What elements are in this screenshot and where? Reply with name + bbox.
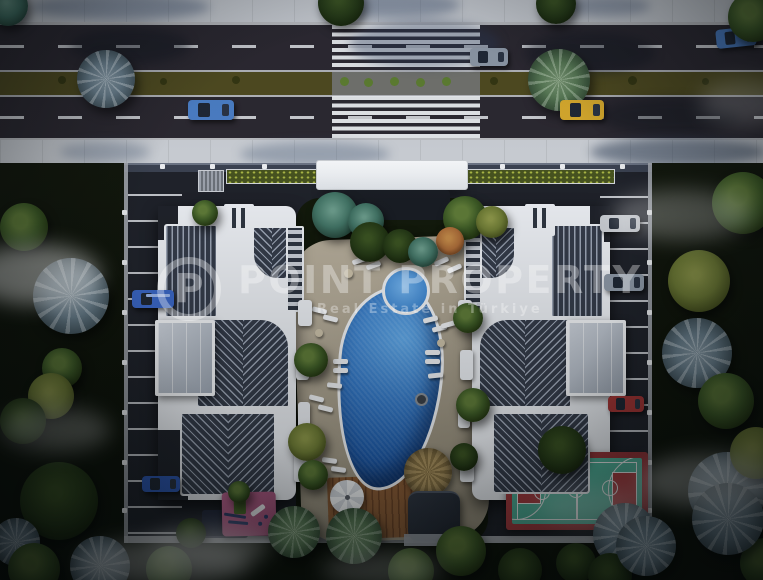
tree [288,423,326,461]
fog-wisp [150,527,270,567]
fog-wisp [0,408,110,452]
fog-wisp [540,488,650,528]
roof-vent-block [224,204,254,236]
car-windshield [613,277,623,289]
roof-vent [241,208,245,228]
parked-car-red [608,396,644,412]
spa-pool [382,267,430,315]
sun-lounger [425,359,440,364]
car-gray [470,48,508,66]
car-rear-window [635,399,641,409]
taxi-yellow [560,100,604,120]
tree [538,426,586,474]
car-windshield [616,398,625,409]
car-windshield [570,103,581,117]
tree [436,227,464,255]
median-shrub [232,76,240,84]
tree [294,343,328,377]
tree [298,460,328,490]
wall-post [210,164,215,169]
building-left [158,204,310,500]
skylight-panel [566,320,626,396]
car-windshield [478,51,488,64]
sun-lounger [333,368,348,373]
car-rear-window [498,52,504,63]
balcony [298,300,312,326]
aerial-property-render: P POINT PROPERTY Real Estate in Türkiye [0,0,763,580]
roof-vent [542,208,546,228]
skylight-panel [155,320,215,396]
car-blue [188,100,234,120]
wall-post [160,164,165,169]
median-shrub [702,78,709,85]
tree [408,237,438,267]
deck-table-dark [415,393,428,406]
deck-table [437,339,445,347]
tree [698,373,754,429]
car-rear-window [593,104,600,116]
sun-lounger [333,359,348,364]
tree [456,388,490,422]
entrance-hedge-left [226,169,318,184]
fog-wisp [612,190,752,240]
tree [668,250,730,312]
crosswalk-lower [332,96,480,138]
wall-post [122,508,127,513]
car-rear-window [170,479,176,489]
wall-post [122,460,127,465]
balcony [460,350,473,380]
car-rear-window [634,277,640,287]
thatched-gazebo [404,448,452,496]
wall-post [122,310,127,315]
median-shrub [490,77,498,85]
van-roof-stripe [146,294,170,297]
tree-shadow [590,138,763,166]
palm-tree [616,516,676,576]
car-windshield [198,103,210,117]
garage-ramp [198,170,224,192]
roof-vent [232,208,236,228]
crosswalk-bush [390,77,399,86]
median-shrub [160,78,167,85]
roof-section [180,412,276,496]
entrance-canopy [316,160,468,190]
roof-section [550,224,604,318]
tree [450,443,478,471]
palm-tree [268,506,320,558]
street-tree [77,50,135,108]
wall-post [122,210,127,215]
tree-shadow [60,142,150,162]
tree [192,200,218,226]
crosswalk-bush [442,77,451,86]
wall-post [122,410,127,415]
crosswalk-bush [340,77,349,86]
fog-wisp [322,552,442,580]
playground-bar [228,520,248,525]
car-rear-window [222,104,229,116]
deck-table [344,269,353,278]
entrance-hedge-right [467,169,615,184]
crosswalk-bush [364,78,373,87]
tree [436,526,486,576]
median-shrub [58,76,66,84]
roof-section [478,318,572,408]
roof-vent-block [525,204,555,236]
parked-car-blue [142,476,180,492]
playground-post [258,522,262,526]
sun-lounger [425,350,440,355]
tree [476,206,508,238]
wall-post [620,164,625,169]
parked-car-gray [604,274,644,291]
crosswalk-bush [416,78,425,87]
tree [453,303,483,333]
tree [0,203,48,251]
median-shrub [628,76,637,85]
car-windshield [150,478,160,489]
wall-post [122,260,127,265]
wall-post [122,360,127,365]
roof-vent [533,208,537,228]
bush [228,481,250,503]
umbrella-hub [345,495,350,500]
playground-post [264,515,268,519]
crosswalk-median-pad [332,72,480,95]
deck-table [315,329,323,337]
parked-van-blue [132,290,174,308]
